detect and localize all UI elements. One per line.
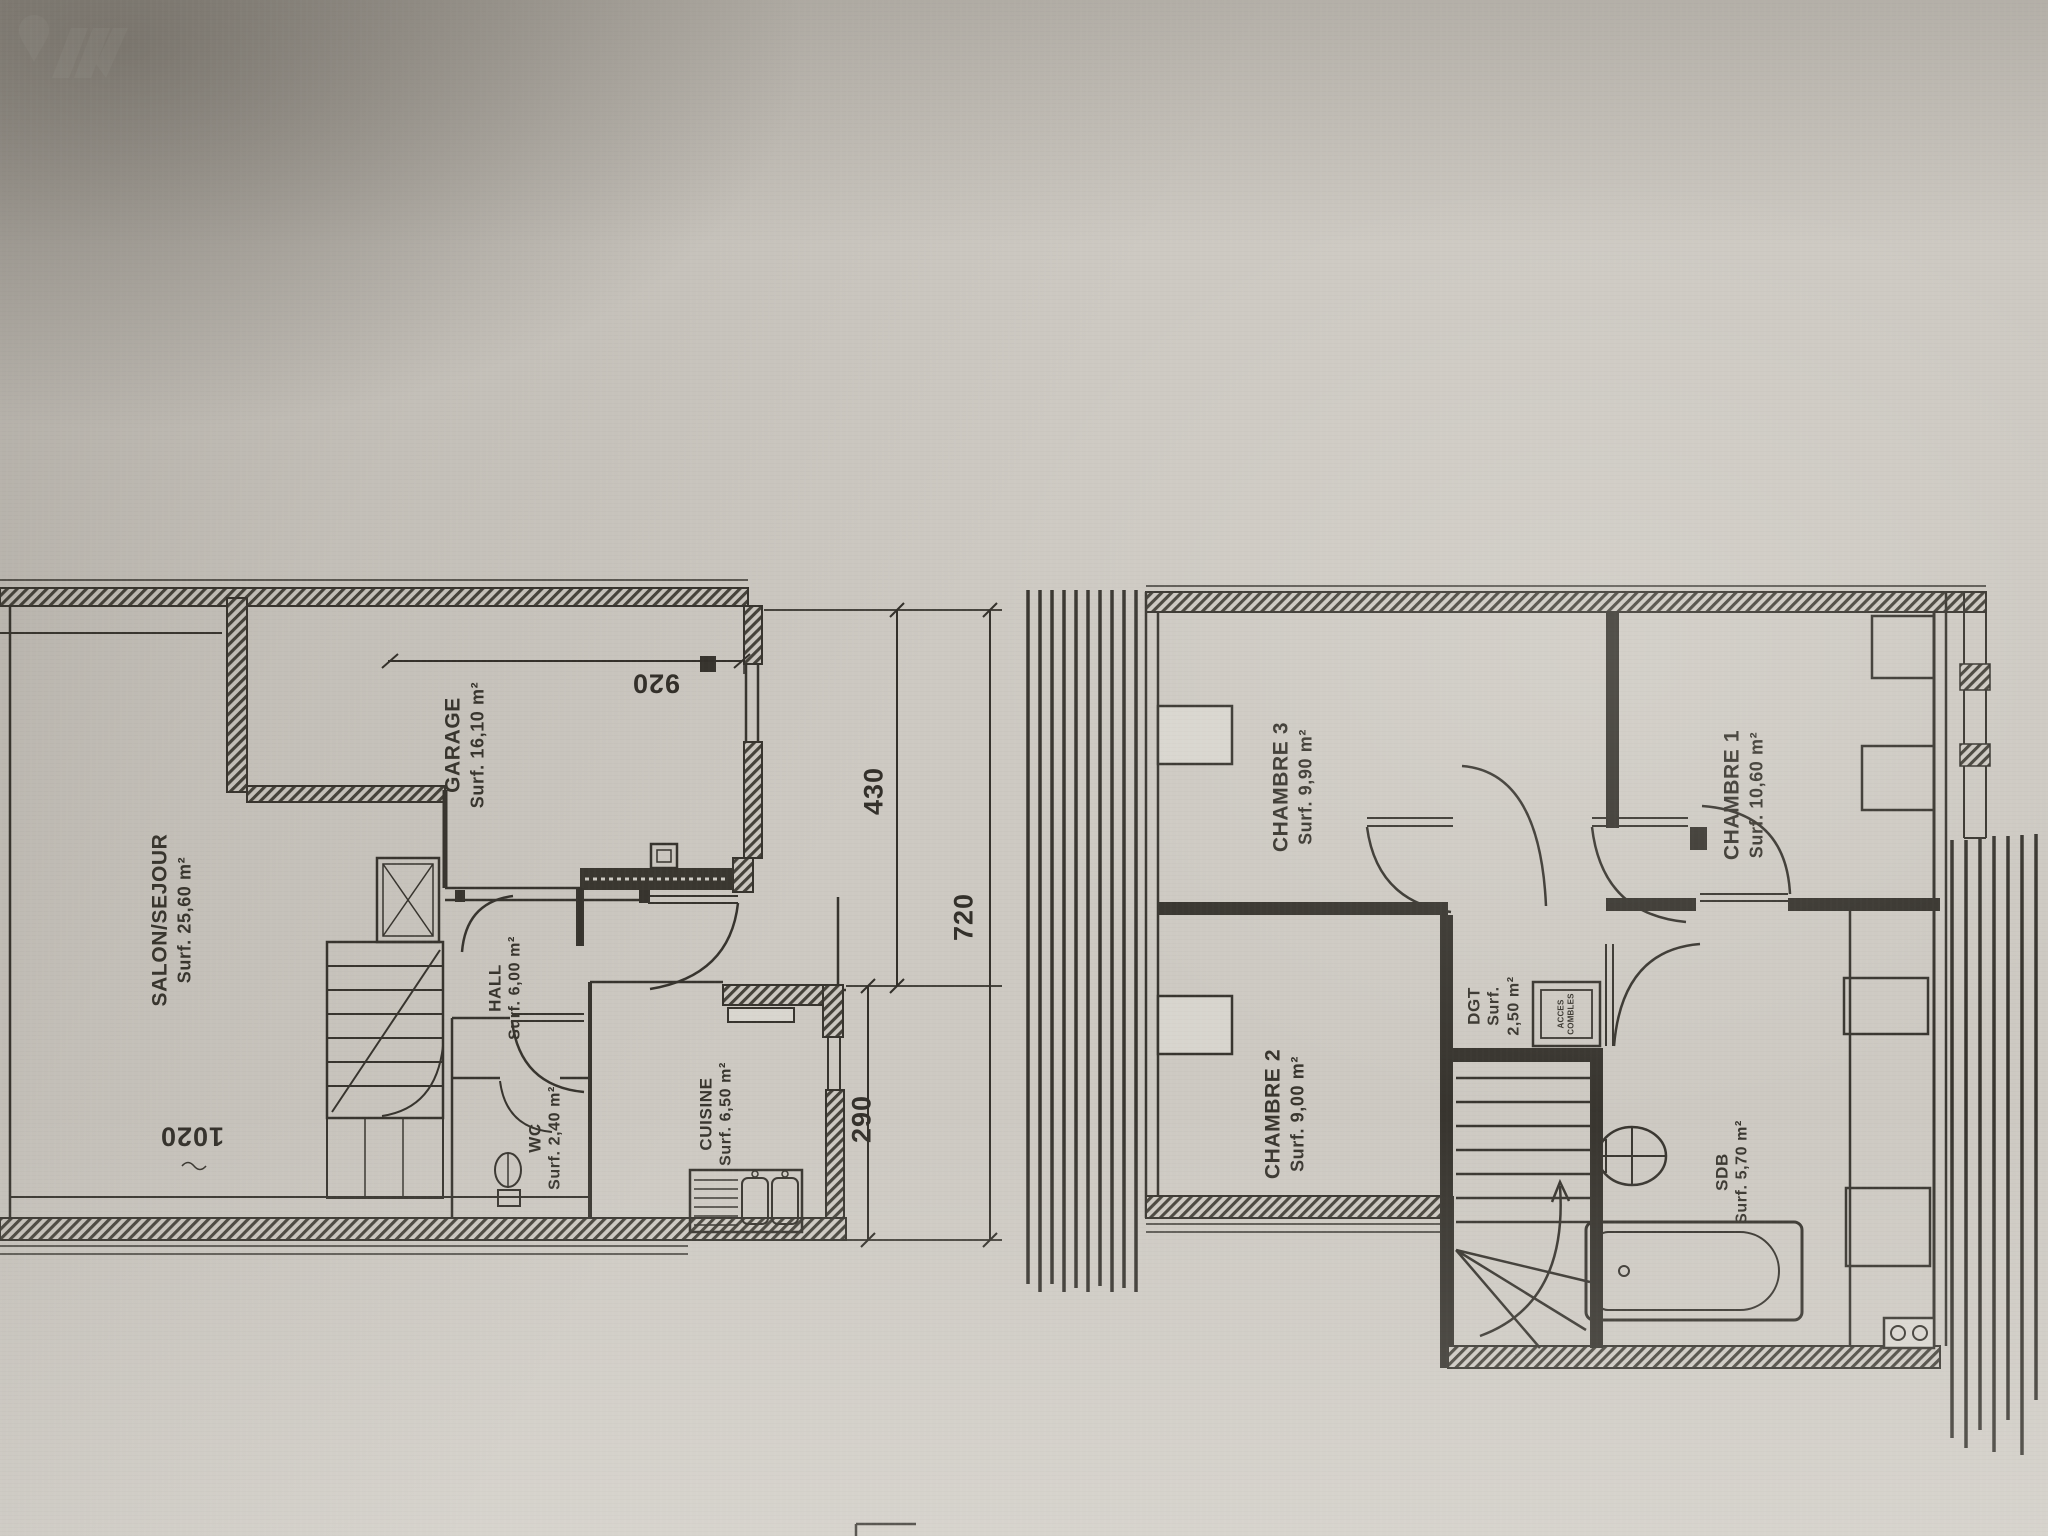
- dim-720: 720: [949, 893, 980, 941]
- dim-1020: 1020: [160, 1121, 224, 1152]
- room-label-chambre1: CHAMBRE 1 Surf. 10,60 m²: [1720, 730, 1769, 860]
- staircase-first: [1453, 1048, 1603, 1348]
- roof-hatch-left: [1028, 590, 1136, 1292]
- room-label-salon: SALON/SEJOUR Surf. 25,60 m²: [148, 834, 197, 1007]
- floorplan-photo: SALON/SEJOUR Surf. 25,60 m² GARAGE Surf.…: [0, 0, 2048, 1536]
- room-label-cuisine: CUISINE Surf. 6,50 m²: [695, 1062, 736, 1166]
- toilet-symbol-first: [1592, 1127, 1666, 1185]
- washbasin: [1884, 1318, 1934, 1348]
- window-box-chambre3: [1158, 706, 1232, 764]
- room-label-hall: HALL Surf. 6,00 m²: [484, 936, 525, 1040]
- dim-290: 290: [847, 1095, 878, 1143]
- bathtub: [1586, 1222, 1802, 1320]
- front-door: [639, 890, 738, 989]
- kitchen-window: [728, 1008, 794, 1022]
- agency-logo-watermark: [19, 15, 128, 78]
- garage-door: [580, 844, 733, 890]
- closet-chambre1-top: [1872, 616, 1934, 678]
- room-label-dgt: DGT Surf. 2,50 m²: [1463, 976, 1524, 1035]
- dim-430: 430: [859, 767, 890, 815]
- room-label-garage: GARAGE Surf. 16,10 m²: [441, 682, 490, 808]
- roof-hatch-right: [1952, 834, 2036, 1455]
- room-label-wc: WC Surf. 2,40 m²: [524, 1086, 565, 1190]
- closet-chambre1-mid: [1862, 746, 1934, 810]
- label-acces-combles: ACCES COMBLES: [1556, 993, 1575, 1034]
- room-label-chambre3: CHAMBRE 3 Surf. 9,90 m²: [1269, 722, 1318, 852]
- room-label-sdb: SDB Surf. 5,70 m²: [1711, 1120, 1752, 1224]
- room-label-chambre2: CHAMBRE 2 Surf. 9,00 m²: [1261, 1049, 1310, 1179]
- staircase-ground: [327, 858, 443, 1198]
- window-box-chambre2: [1158, 996, 1232, 1054]
- dim-920: 920: [632, 668, 680, 699]
- first-floor-plan: [1028, 586, 2036, 1455]
- toilet-symbol-ground: [495, 1153, 521, 1206]
